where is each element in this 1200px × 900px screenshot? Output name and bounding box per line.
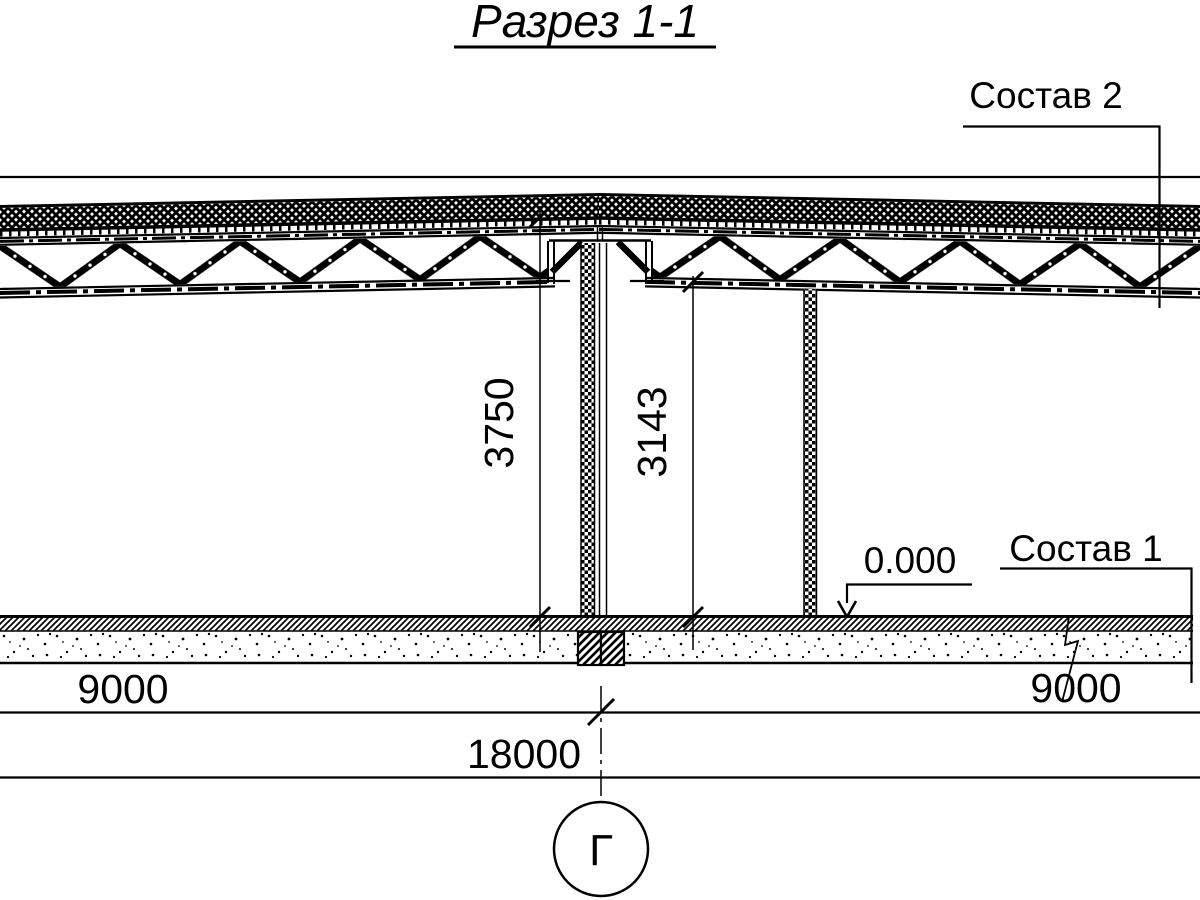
roof-left-half [0, 194, 601, 297]
floor-screed-hatch [0, 618, 1193, 631]
dim-span-right-label: 9000 [1030, 665, 1121, 711]
right-column [804, 289, 817, 617]
right-column-hatch [805, 289, 817, 617]
axis-letter: Г [589, 826, 613, 875]
dim-3750-label: 3750 [476, 377, 522, 468]
dim-total-span-label: 18000 [467, 731, 581, 777]
dim-3143-label: 3143 [629, 386, 675, 477]
title-block: Разрез 1-1 [454, 0, 716, 47]
composition-2-label: Состав 2 [969, 75, 1122, 116]
grid-axis: Г [554, 686, 648, 896]
section-drawing: 3750 3143 0.000 Состав 2 Состав 1 9000 9… [0, 0, 1200, 900]
foundation-block [601, 632, 624, 665]
dimension-3143: 3143 [629, 272, 703, 650]
roof-right-half [599, 194, 1200, 297]
elevation-arrow-icon [838, 601, 856, 617]
dim-span-left-label: 9000 [77, 666, 168, 712]
foundation-block [578, 632, 601, 665]
center-column-pair [581, 243, 607, 617]
drawing-title: Разрез 1-1 [471, 0, 699, 47]
elevation-mark: 0.000 [838, 540, 972, 617]
floor-assembly [0, 616, 1193, 702]
composition-1-label: Состав 1 [1009, 528, 1162, 569]
span-dimensions: 9000 9000 18000 [0, 665, 1200, 778]
drawing-sheet: 3750 3143 0.000 Состав 2 Состав 1 9000 9… [0, 0, 1200, 900]
ridge-brace-left [552, 242, 582, 272]
elevation-label: 0.000 [864, 540, 957, 581]
ridge-brace-right [618, 242, 648, 272]
center-column-hatch [582, 243, 595, 617]
